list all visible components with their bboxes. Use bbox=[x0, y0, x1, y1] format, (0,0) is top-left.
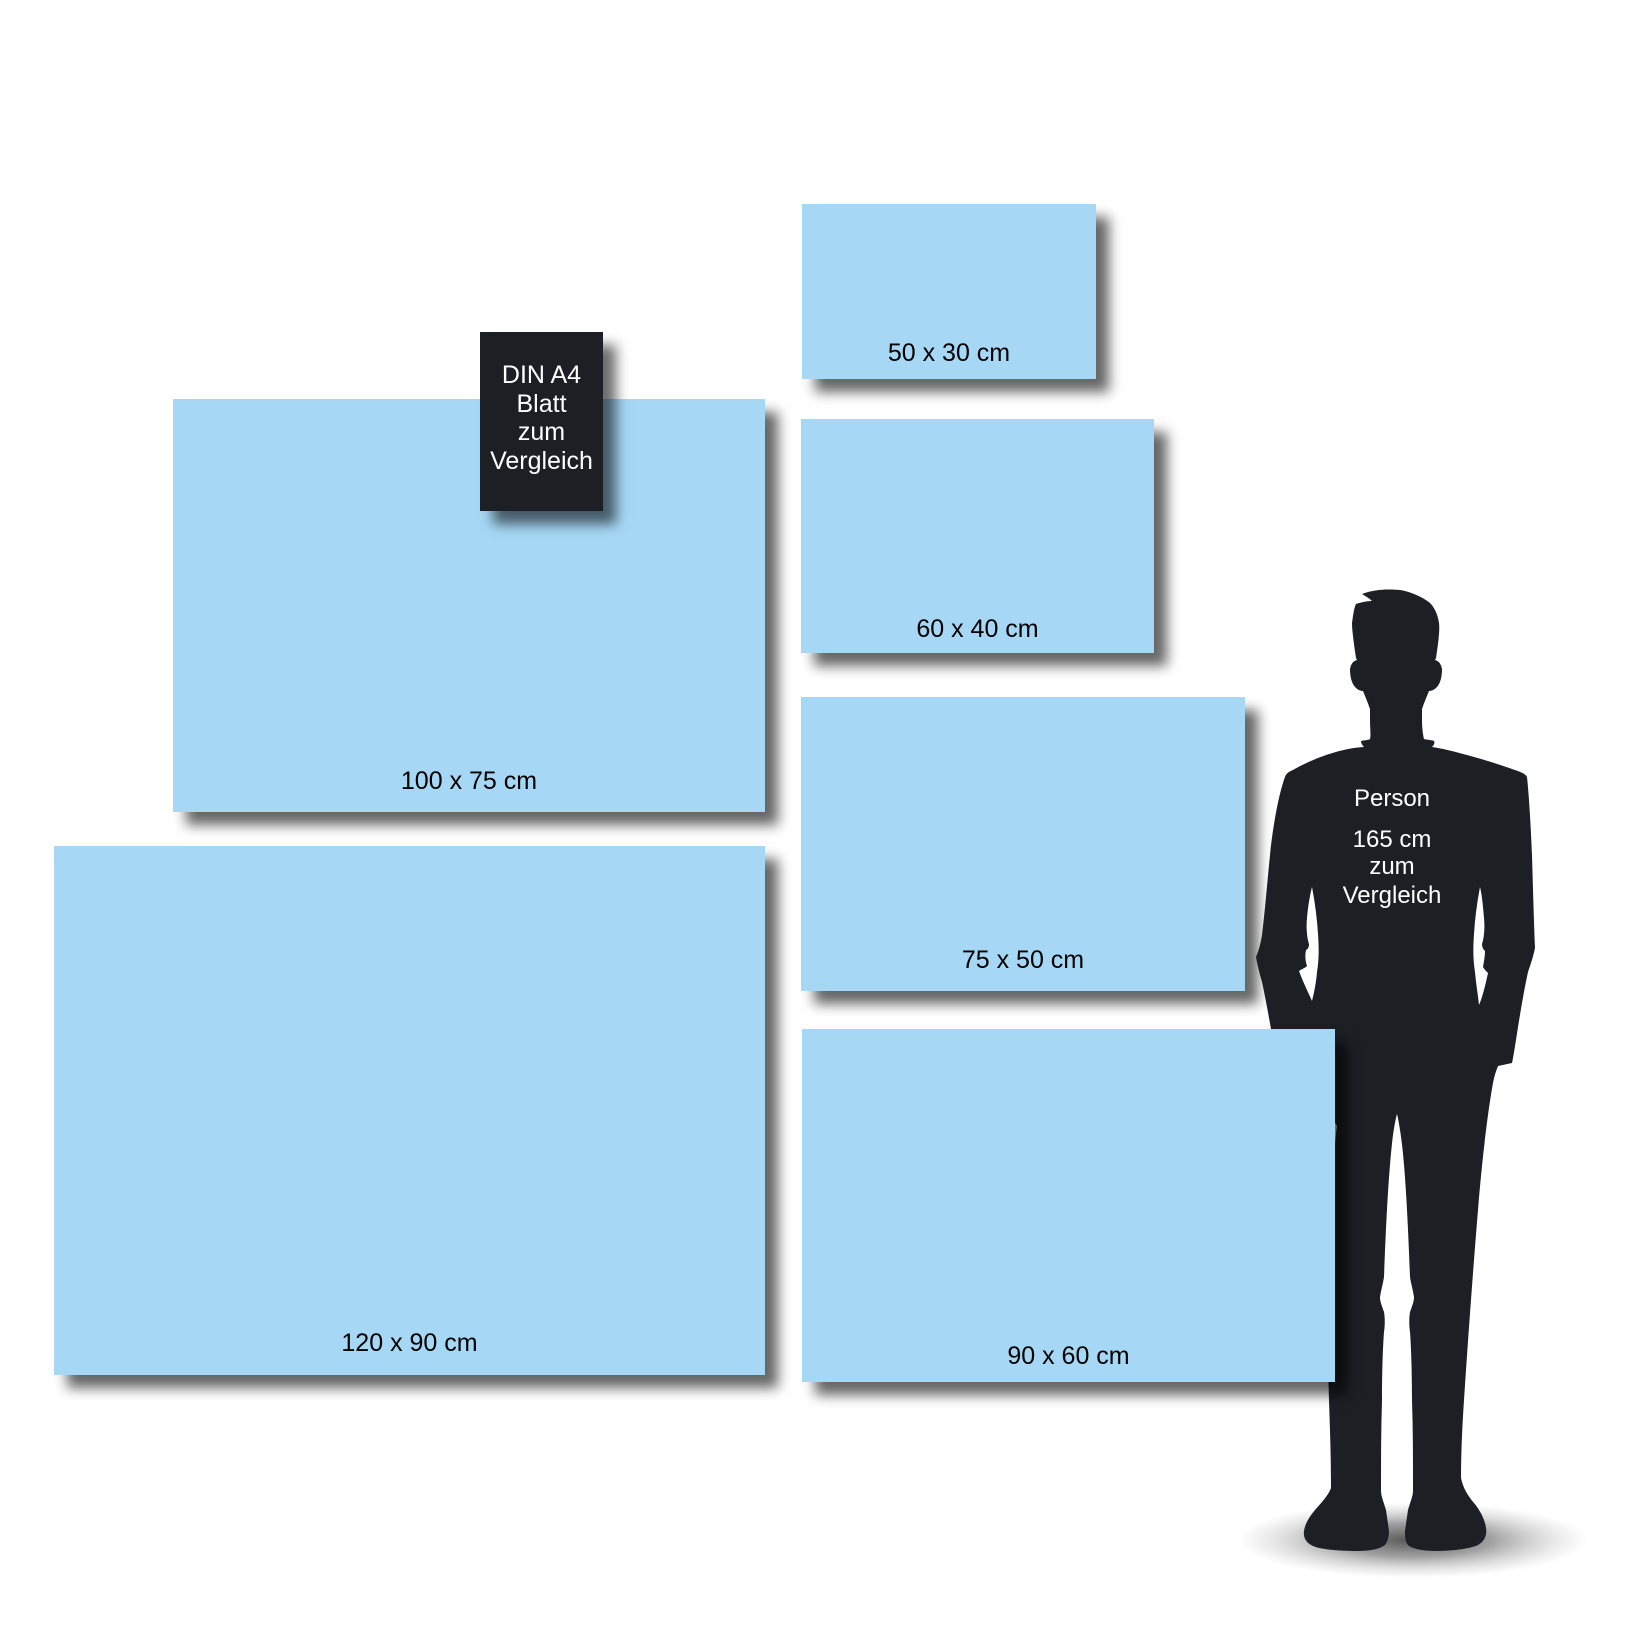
svg-text:zum: zum bbox=[1369, 853, 1414, 880]
svg-text:165 cm: 165 cm bbox=[1353, 826, 1432, 853]
svg-text:Vergleich: Vergleich bbox=[1343, 882, 1442, 909]
svg-text:Person: Person bbox=[1354, 785, 1430, 812]
